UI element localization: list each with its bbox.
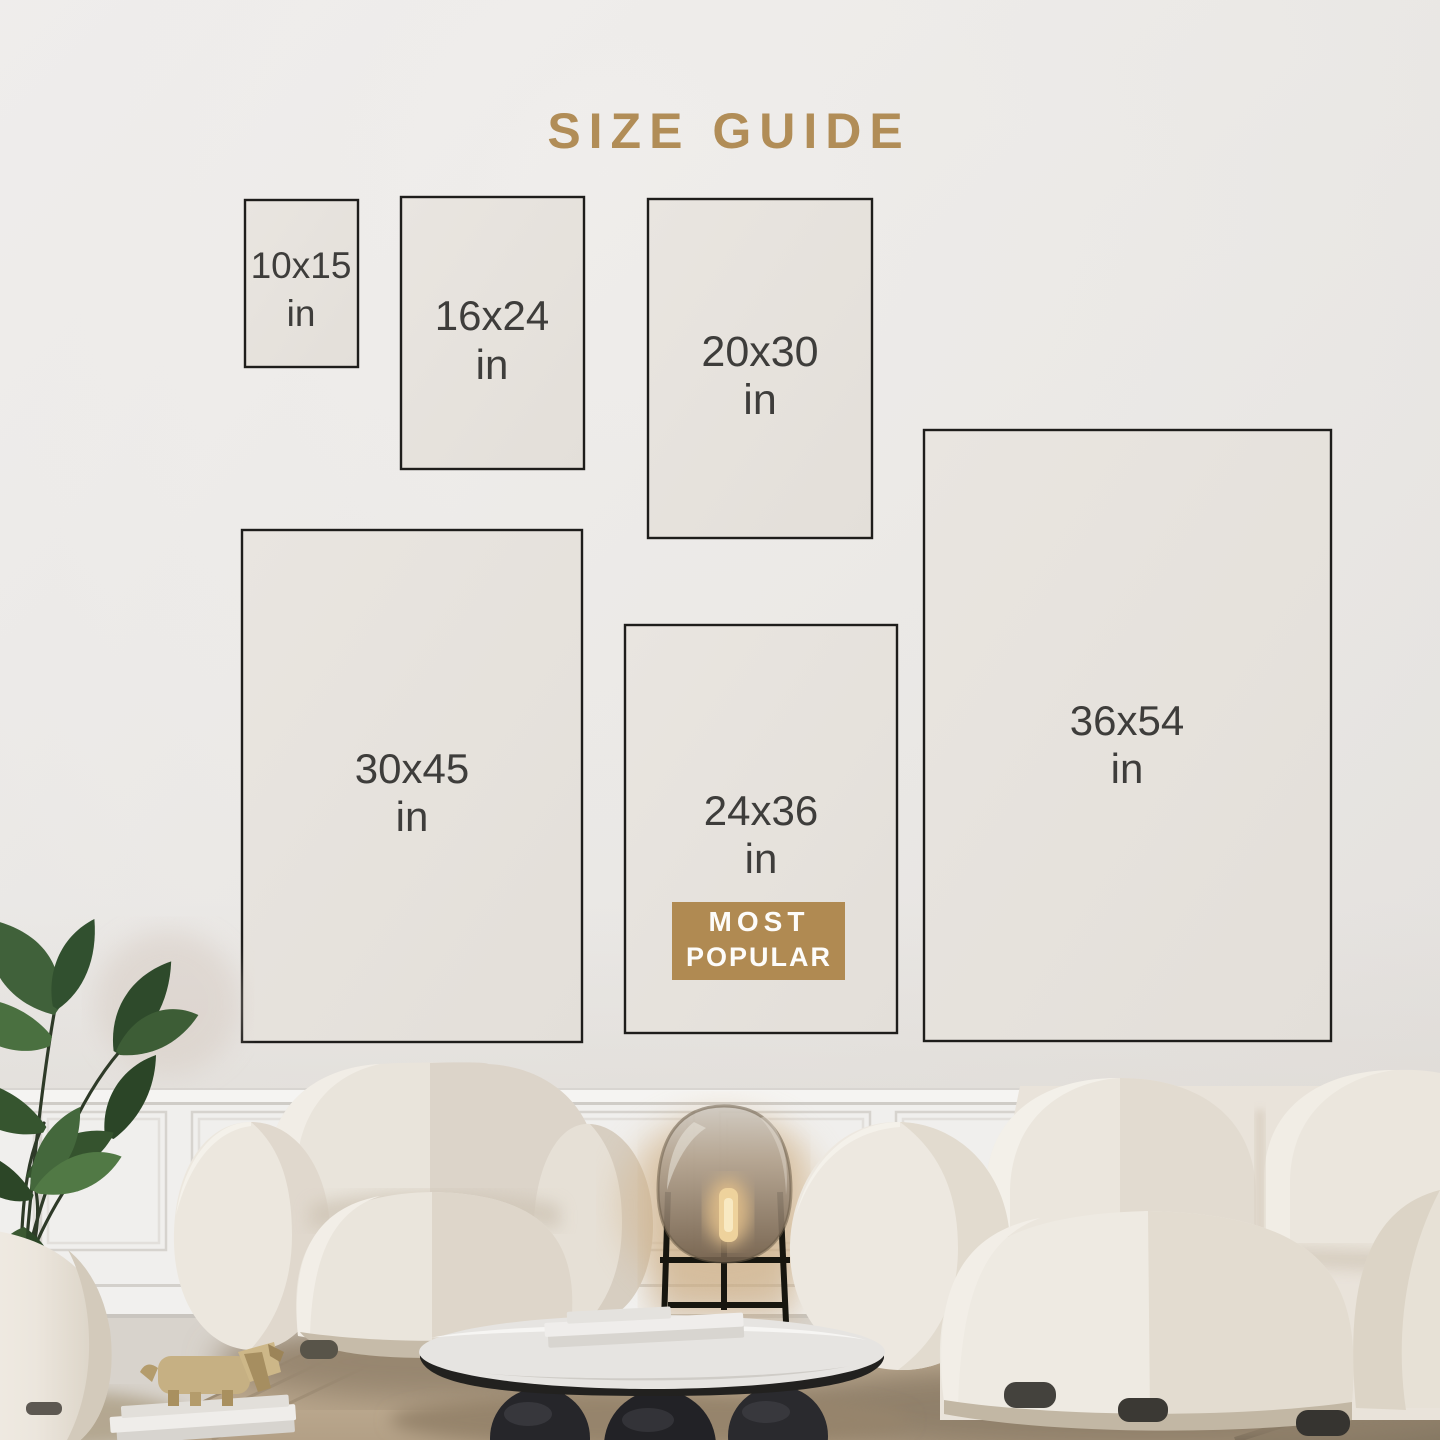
svg-text:in: in (476, 341, 509, 388)
svg-text:16x24: 16x24 (435, 292, 549, 339)
svg-text:in: in (745, 835, 778, 882)
svg-text:POPULAR: POPULAR (686, 942, 832, 972)
svg-text:in: in (287, 293, 316, 334)
svg-text:SIZE GUIDE: SIZE GUIDE (547, 103, 910, 159)
svg-text:24x36: 24x36 (704, 787, 818, 834)
svg-text:in: in (1111, 745, 1144, 792)
svg-text:MOST: MOST (709, 906, 810, 937)
svg-text:in: in (743, 376, 776, 424)
svg-text:10x15: 10x15 (251, 245, 352, 286)
svg-text:in: in (396, 793, 429, 840)
svg-text:20x30: 20x30 (701, 328, 818, 376)
svg-text:36x54: 36x54 (1070, 697, 1184, 744)
svg-text:30x45: 30x45 (355, 745, 469, 792)
